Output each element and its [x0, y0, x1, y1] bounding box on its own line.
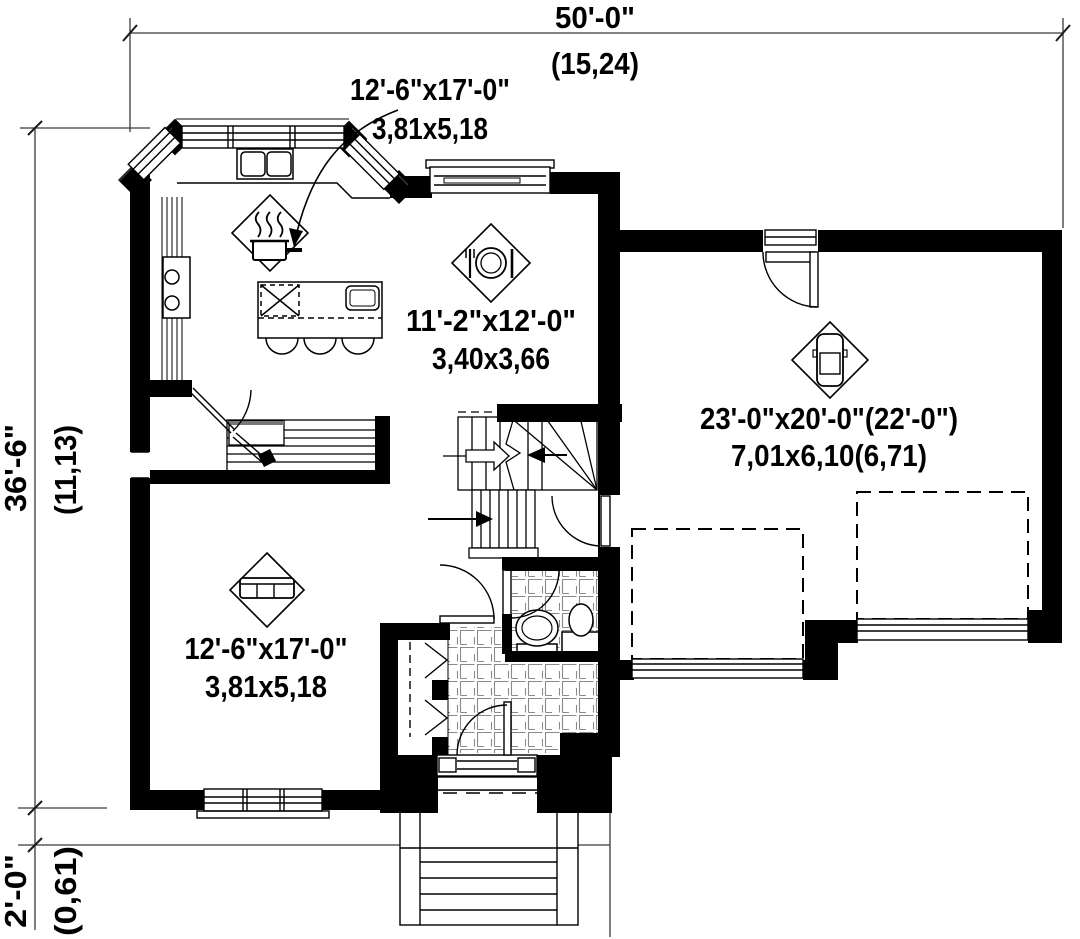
- kitchen-size-metric: 3,81x5,18: [372, 111, 488, 146]
- dimension-top-imperial: 50'-0": [555, 0, 635, 35]
- living-window: [197, 789, 329, 818]
- dining-size-imperial: 11'-2"x12'-0": [406, 303, 576, 338]
- west-wall: [130, 168, 150, 810]
- dining-size-metric: 3,40x3,66: [432, 341, 550, 376]
- garage-door-left: [632, 659, 803, 678]
- closet-north-wall: [398, 623, 450, 640]
- garage-door-swing-left: [632, 529, 803, 659]
- porch-landing-step: [428, 777, 550, 790]
- stair-landing: [469, 548, 538, 558]
- stair-north-wall: [497, 404, 622, 422]
- foyer-floor-east: [558, 662, 598, 733]
- dimension-left-imperial: 36'-6": [0, 424, 33, 512]
- garage-door-right: [857, 619, 1028, 640]
- dimension-top-metric: (15,24): [551, 46, 639, 81]
- powder-north-wall: [505, 557, 612, 571]
- car-icon: [792, 322, 868, 398]
- living-size-metric: 3,81x5,18: [205, 669, 327, 704]
- kitchen-size-imperial: 12'-6"x17'-0": [350, 72, 510, 107]
- dimension-bottom-metric: (0,61): [48, 846, 83, 936]
- sink-icon: [569, 604, 593, 636]
- garage-size-imperial: 23'-0"x20'-0"(22'-0"): [700, 401, 958, 436]
- dimension-left-metric: (11,13): [48, 425, 83, 515]
- floor-plan-drawing: 50'-0" (15,24) 36'-6" (11,13) 2'-0" (0,6…: [0, 0, 1080, 939]
- garage-north-wall: [598, 230, 1062, 252]
- living-north-wall: [145, 470, 390, 484]
- kitchen-counter-edge: [177, 183, 390, 198]
- kitchen-living-divider: [130, 380, 192, 397]
- dining-window: [426, 160, 554, 193]
- living-size-imperial: 12'-6"x17'-0": [185, 631, 348, 666]
- stool: [342, 338, 374, 354]
- floor-plan-canvas: 50'-0" (15,24) 36'-6" (11,13) 2'-0" (0,6…: [0, 0, 1080, 939]
- dimension-bottom-imperial: 2'-0": [0, 854, 33, 928]
- stool: [304, 338, 336, 354]
- garage-east-wall: [1042, 230, 1062, 643]
- stool: [266, 338, 298, 354]
- garage-entry-door: [763, 228, 818, 307]
- plate-cutlery-icon: [452, 224, 530, 302]
- hall-garage-door: [552, 495, 620, 547]
- powder-south-wall: [505, 651, 612, 662]
- garage-size-metric: 7,01x6,10(6,71): [731, 438, 927, 473]
- garage-door-swing-right: [857, 492, 1028, 619]
- sofa-icon: [230, 553, 304, 627]
- hall-foyer-door: [440, 565, 494, 623]
